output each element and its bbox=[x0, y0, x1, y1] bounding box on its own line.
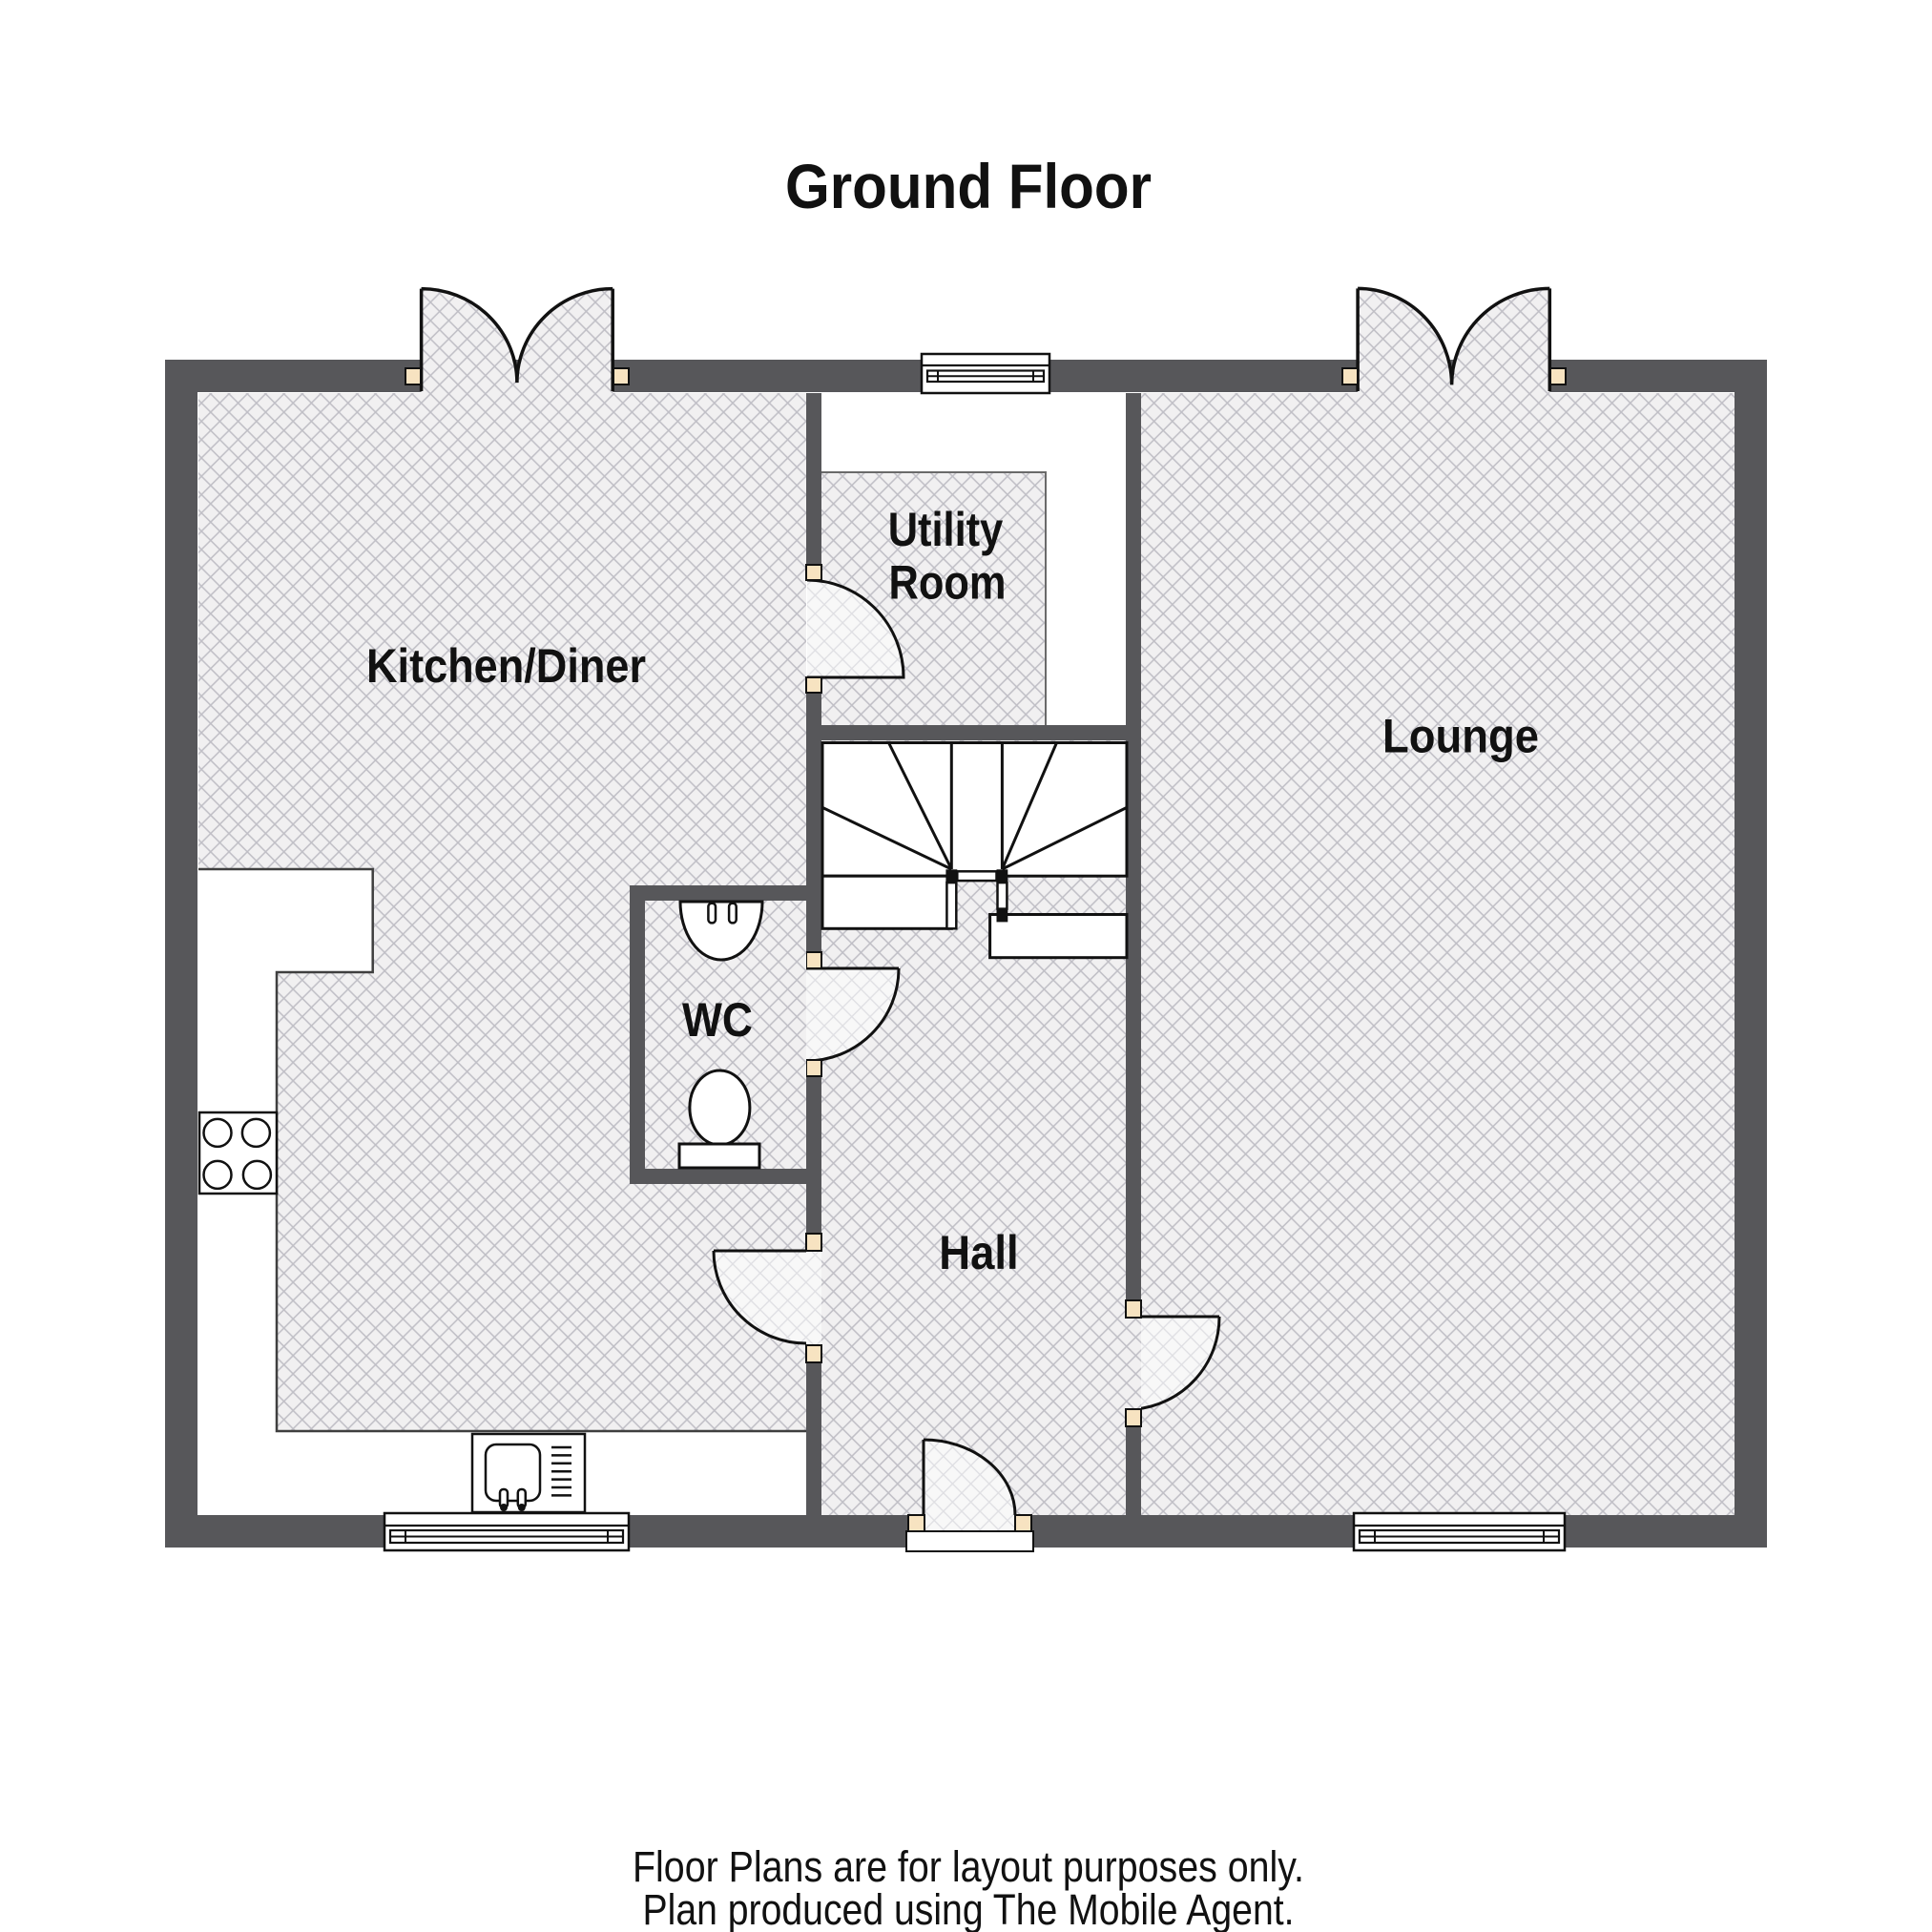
svg-text:WC: WC bbox=[682, 993, 753, 1047]
svg-text:Plan produced using The Mobile: Plan produced using The Mobile Agent. bbox=[643, 1885, 1295, 1932]
svg-text:Hall: Hall bbox=[939, 1226, 1018, 1279]
svg-text:Room: Room bbox=[889, 556, 1007, 610]
svg-text:Kitchen/Diner: Kitchen/Diner bbox=[366, 639, 646, 693]
svg-text:Ground Floor: Ground Floor bbox=[785, 151, 1152, 221]
svg-text:Floor Plans are for layout pur: Floor Plans are for layout purposes only… bbox=[633, 1842, 1304, 1891]
svg-text:Lounge: Lounge bbox=[1382, 709, 1539, 762]
svg-text:Utility: Utility bbox=[888, 503, 1004, 556]
